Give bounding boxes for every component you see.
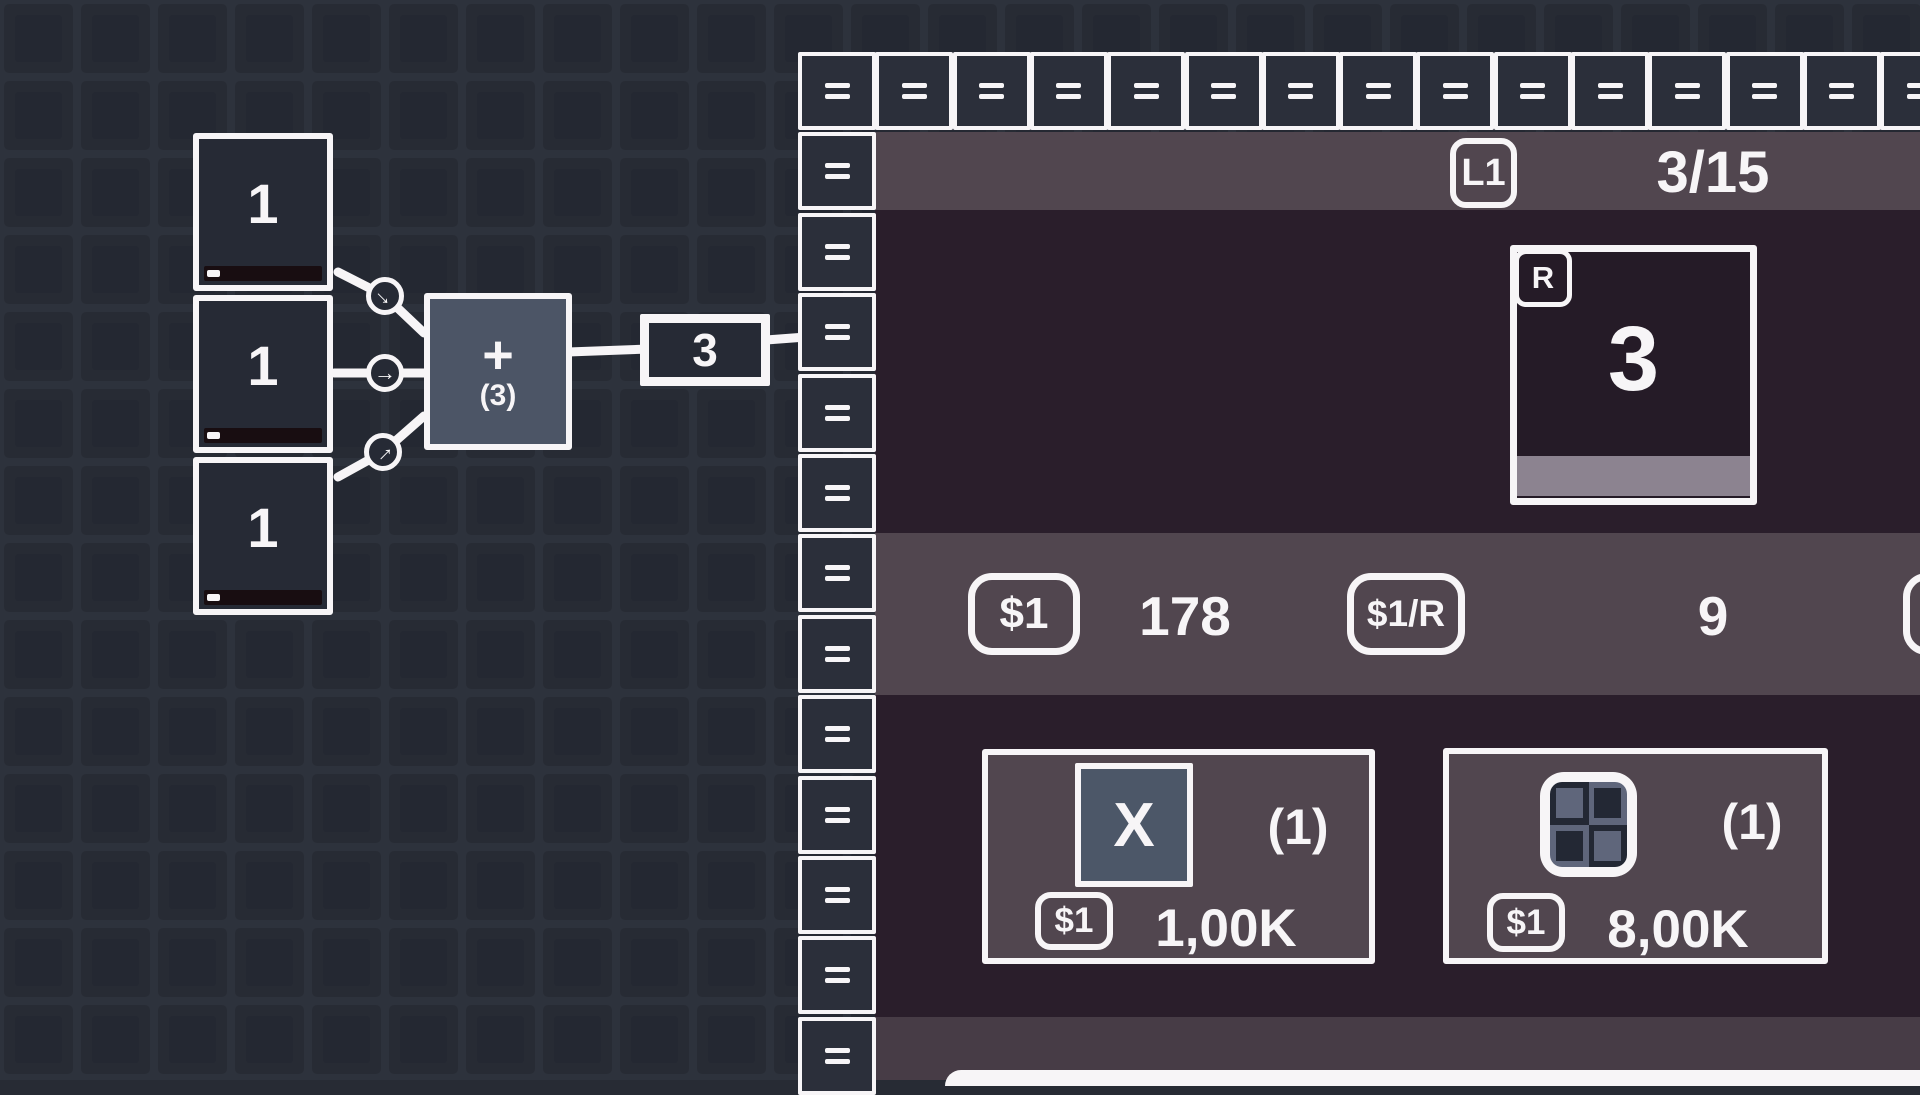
equals-icon — [825, 807, 850, 823]
panel-border-cell — [798, 856, 876, 934]
panel-border-cell — [1416, 52, 1494, 130]
panel-border-cell — [1648, 52, 1726, 130]
equals-icon — [1598, 83, 1623, 99]
equals-icon — [1134, 83, 1159, 99]
money-per-resource-badge-label: $1/R — [1367, 593, 1445, 635]
wire-operator-to-output — [568, 349, 648, 352]
equals-icon — [825, 646, 850, 662]
equals-icon — [1056, 83, 1081, 99]
panel-border-cell — [798, 534, 876, 612]
resource-badge: R — [1514, 249, 1572, 307]
node-progress-track — [204, 266, 322, 281]
input-node-1[interactable]: 1 — [193, 133, 333, 291]
input-node-2[interactable]: 1 — [193, 295, 333, 453]
grid-tiles-icon — [1540, 772, 1637, 877]
panel-border-cell — [798, 454, 876, 532]
panel-border-cell — [1030, 52, 1108, 130]
panel-border-cell — [798, 374, 876, 452]
panel-border-cell — [875, 52, 953, 130]
money-value: 178 — [1108, 584, 1262, 648]
node-value: 1 — [247, 171, 278, 236]
money-per-resource-value: 9 — [1640, 584, 1786, 648]
node-progress-fill — [207, 432, 220, 439]
input-node-3[interactable]: 1 — [193, 457, 333, 615]
grid-cell — [1550, 782, 1589, 825]
resource-progress-bar — [1517, 456, 1750, 496]
equals-icon — [1443, 83, 1468, 99]
equals-icon — [1675, 83, 1700, 99]
equals-icon — [979, 83, 1004, 99]
currency-badge: $1 — [1035, 892, 1113, 950]
panel-border-cell — [798, 776, 876, 854]
panel-border-cell — [1339, 52, 1417, 130]
arrow-icon: → — [374, 362, 396, 384]
node-value: 1 — [247, 495, 278, 560]
connector-arrow-right[interactable]: → — [366, 354, 404, 392]
level-progress-counter: 3/15 — [1600, 139, 1826, 206]
equals-icon — [1752, 83, 1777, 99]
equals-icon — [825, 163, 850, 179]
panel-border-cell — [1726, 52, 1804, 130]
shop-item-price: 1,00K — [1138, 898, 1314, 959]
resource-badge-label: R — [1532, 260, 1554, 296]
panel-border-cell — [1107, 52, 1185, 130]
grid-tiles-icon-inner — [1550, 782, 1627, 867]
equals-icon — [825, 324, 850, 340]
output-value-box[interactable]: 3 — [640, 314, 770, 386]
currency-badge: $1 — [1487, 893, 1565, 952]
money-badge: $1 — [968, 573, 1080, 655]
panel-border-cell — [1571, 52, 1649, 130]
operator-buffer: (3) — [480, 379, 517, 413]
money-badge-label: $1 — [1000, 589, 1049, 639]
resource-value: 3 — [1517, 307, 1750, 412]
node-progress-track — [204, 590, 322, 605]
panel-border-cell — [953, 52, 1031, 130]
partial-badge — [1903, 573, 1920, 655]
equals-icon — [825, 244, 850, 260]
node-progress-fill — [207, 270, 220, 277]
panel-border-cell — [1185, 52, 1263, 130]
equals-icon — [902, 83, 927, 99]
equals-icon — [1288, 83, 1313, 99]
panel-border-cell — [1880, 52, 1920, 130]
node-progress-track — [204, 428, 322, 443]
shop-item-owned-count: (1) — [1692, 793, 1812, 851]
shop-item-owned-count: (1) — [1238, 798, 1358, 856]
equals-icon — [1211, 83, 1236, 99]
panel-border-cell — [798, 213, 876, 291]
panel-border-cell — [798, 615, 876, 693]
panel-border-cell — [798, 293, 876, 371]
grid-cell — [1589, 825, 1628, 868]
equals-icon — [1520, 83, 1545, 99]
arrow-icon: → — [367, 436, 398, 467]
equals-icon — [1829, 83, 1854, 99]
grid-cell — [1550, 825, 1589, 868]
currency-badge-label: $1 — [1507, 903, 1546, 943]
currency-badge-label: $1 — [1055, 901, 1094, 941]
level-badge-label: L1 — [1461, 152, 1505, 195]
panel-border-cell — [1494, 52, 1572, 130]
panel-border-cell — [798, 52, 876, 130]
grid-cell — [1589, 782, 1628, 825]
money-per-resource-badge: $1/R — [1347, 573, 1465, 655]
connector-arrow-up-right[interactable]: → — [364, 433, 402, 471]
equals-icon — [1366, 83, 1391, 99]
panel-border-cell — [798, 695, 876, 773]
equals-icon — [825, 485, 850, 501]
equals-icon — [1907, 83, 1920, 99]
output-value: 3 — [692, 323, 718, 377]
equals-icon — [825, 83, 850, 99]
resource-card: R 3 — [1510, 245, 1757, 505]
shop-item-price: 8,00K — [1588, 899, 1768, 960]
multiply-node-icon: X — [1075, 763, 1193, 887]
panel-border-cell — [1262, 52, 1340, 130]
equals-icon — [825, 405, 850, 421]
level-badge: L1 — [1450, 138, 1517, 208]
node-progress-fill — [207, 594, 220, 601]
connector-arrow-down-right[interactable]: → — [366, 277, 404, 315]
operator-symbol: + — [482, 331, 514, 379]
equals-icon — [825, 1048, 850, 1064]
panel-border-cell — [798, 936, 876, 1014]
equals-icon — [825, 565, 850, 581]
panel-border-cell — [798, 132, 876, 210]
arrow-icon: → — [369, 280, 400, 311]
node-value: 1 — [247, 333, 278, 398]
panel-border-cell — [1803, 52, 1881, 130]
equals-icon — [825, 726, 850, 742]
equals-icon — [825, 887, 850, 903]
multiply-node-icon-label: X — [1113, 790, 1154, 861]
panel-border-cell — [798, 1017, 876, 1095]
adder-node[interactable]: + (3) — [424, 293, 572, 450]
equals-icon — [825, 967, 850, 983]
